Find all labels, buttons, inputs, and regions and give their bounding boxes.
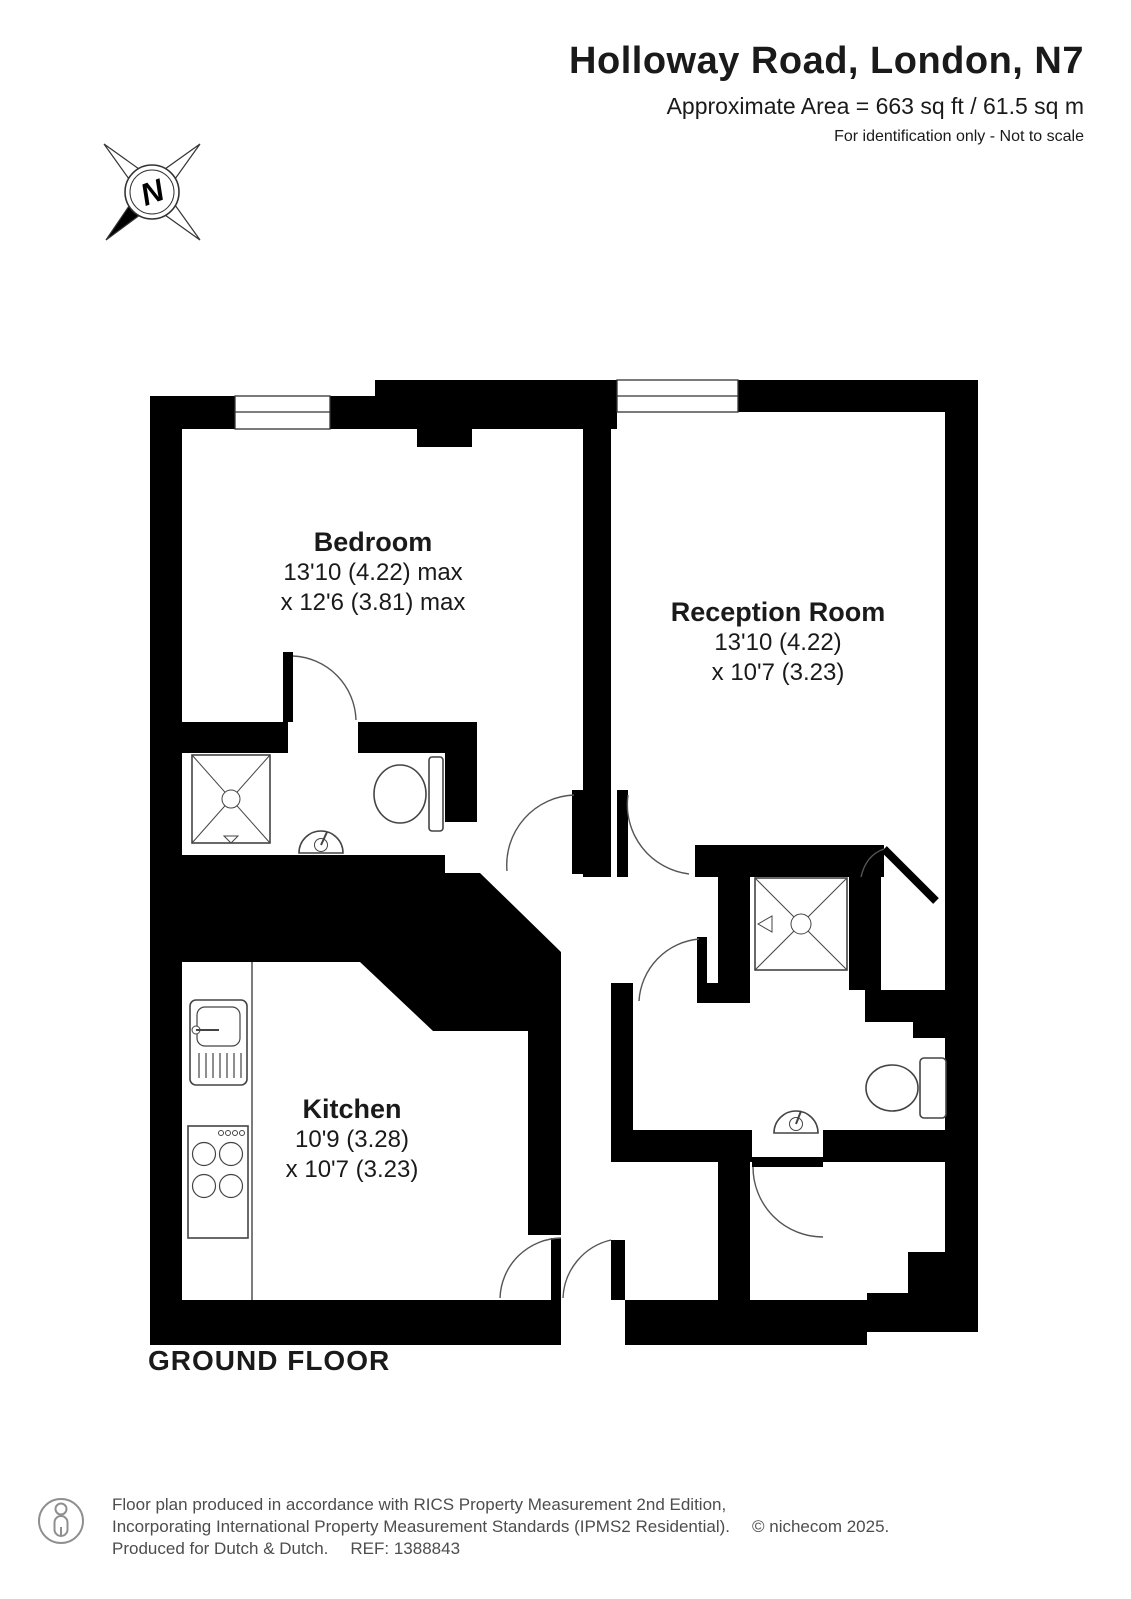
footer-produced-for: Produced for Dutch & Dutch. xyxy=(112,1539,328,1558)
wall xyxy=(867,1293,908,1332)
door-leaf xyxy=(611,1240,625,1300)
wall xyxy=(703,983,750,1003)
toilet xyxy=(374,757,443,831)
wall xyxy=(445,753,477,822)
floor-label: GROUND FLOOR xyxy=(148,1345,390,1377)
door-arc xyxy=(507,795,574,871)
footer-text: Floor plan produced in accordance with R… xyxy=(112,1494,889,1560)
toilet xyxy=(866,1058,946,1118)
wall xyxy=(150,722,288,753)
kitchen-sink xyxy=(190,1000,247,1085)
window xyxy=(617,380,738,412)
wall xyxy=(375,380,617,429)
window xyxy=(235,396,330,429)
wall xyxy=(718,857,750,1003)
person-icon xyxy=(36,1494,86,1548)
wall xyxy=(611,1130,752,1162)
wash-basin xyxy=(299,831,343,853)
door-leaf xyxy=(551,1238,561,1300)
wall xyxy=(150,396,235,429)
hob xyxy=(188,1126,248,1238)
footer-line3: Produced for Dutch & Dutch.REF: 1388843 xyxy=(112,1538,889,1560)
wall xyxy=(150,1300,561,1345)
shower-tray xyxy=(755,878,847,970)
walls xyxy=(150,380,978,1345)
door-leaf xyxy=(884,849,936,901)
wall xyxy=(849,877,881,990)
wall xyxy=(625,1300,867,1345)
wall xyxy=(945,380,978,1332)
footer-ref: REF: 1388843 xyxy=(350,1539,460,1558)
footer: Floor plan produced in accordance with R… xyxy=(36,1494,889,1560)
door-arc xyxy=(563,1240,611,1298)
wall xyxy=(823,1130,945,1162)
floorplan-page: Holloway Road, London, N7 Approximate Ar… xyxy=(0,0,1131,1599)
wall xyxy=(718,1162,750,1300)
compass: N xyxy=(104,144,200,240)
door-leaf xyxy=(617,790,628,877)
door-arc xyxy=(639,939,699,1001)
wall xyxy=(583,429,611,877)
wall xyxy=(417,429,472,447)
door-leaf xyxy=(572,790,583,874)
door-leaf xyxy=(697,937,707,1003)
door-arc xyxy=(753,1167,823,1237)
wall xyxy=(908,1252,945,1332)
wall xyxy=(738,380,978,412)
footer-line2: Incorporating International Property Mea… xyxy=(112,1516,889,1538)
footer-line1: Floor plan produced in accordance with R… xyxy=(112,1494,889,1516)
wall xyxy=(611,983,633,1130)
fixtures xyxy=(188,755,946,1300)
door-arc xyxy=(627,795,689,874)
footer-copyright: © nichecom 2025. xyxy=(752,1517,889,1536)
wall xyxy=(913,1002,945,1038)
door-leaf xyxy=(283,652,293,722)
shower-tray xyxy=(192,755,270,843)
door-arc xyxy=(293,656,356,720)
door-leaf xyxy=(752,1157,823,1167)
wash-basin xyxy=(774,1111,818,1133)
footer-line2-text: Incorporating International Property Mea… xyxy=(112,1517,730,1536)
wall xyxy=(358,722,477,753)
